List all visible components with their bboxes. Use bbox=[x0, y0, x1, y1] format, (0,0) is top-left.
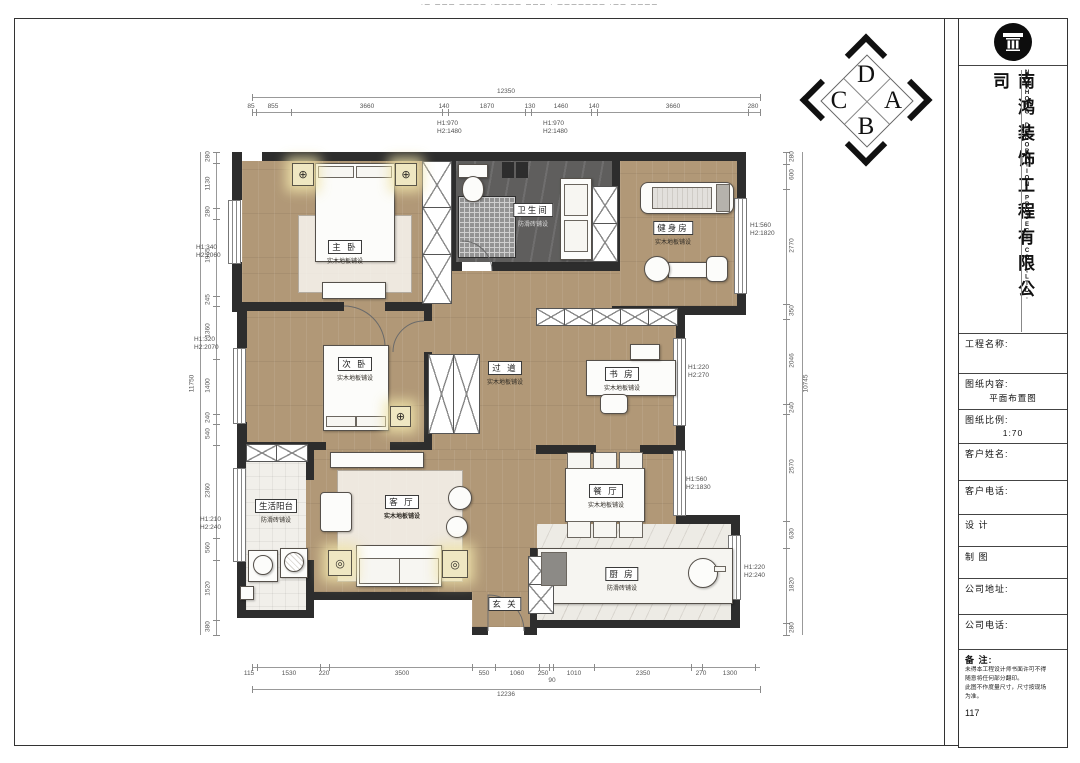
laundry-basin bbox=[284, 552, 304, 572]
field-drawing-scale: 图纸比例: 1:70 bbox=[959, 409, 1067, 443]
desk-chair bbox=[600, 394, 628, 414]
dining-chair bbox=[593, 521, 617, 538]
field-value: 平面布置图 bbox=[959, 392, 1067, 404]
room-label-study: 书 房 实木地板铺设 bbox=[604, 364, 640, 392]
bookshelf bbox=[592, 308, 622, 326]
balcony-cabinet bbox=[246, 444, 278, 462]
bookshelf bbox=[536, 308, 566, 326]
remarks-line: 为准。 bbox=[959, 693, 1067, 702]
dining-chair bbox=[567, 452, 591, 469]
dimension-total: 11750 bbox=[189, 364, 196, 404]
dimension-value: 630 bbox=[789, 522, 796, 546]
entry-cabinet bbox=[528, 584, 554, 614]
balcony-cabinet bbox=[276, 444, 308, 462]
pillow bbox=[356, 416, 386, 427]
field-draftsman: 制 图 bbox=[959, 546, 1067, 578]
dimension-value: 245 bbox=[205, 288, 212, 312]
wardrobe bbox=[422, 207, 452, 256]
dimension-value: 250 bbox=[532, 670, 554, 677]
company-name-section: 南鸿装饰工程有限公司 NANHONG DECORATION PROJECT CO… bbox=[959, 65, 1067, 333]
pillow bbox=[326, 416, 356, 427]
remarks-line: 此图不作度量尺寸，尺寸按现场 bbox=[959, 684, 1067, 693]
floor-lamp-icon: ◎ bbox=[442, 550, 468, 578]
floor-finish-label: 防滑砖铺设 bbox=[255, 515, 297, 524]
height-annotation: H1:970 H2:1480 bbox=[437, 120, 462, 136]
height-annotation: H1:970 H2:1480 bbox=[543, 120, 568, 136]
dimension-value: 2350 bbox=[631, 670, 655, 677]
dimension-value: 140 bbox=[433, 103, 455, 110]
field-value: 1:70 bbox=[959, 428, 1067, 438]
room-name: 次 卧 bbox=[338, 357, 371, 371]
cooktop bbox=[541, 552, 567, 586]
wardrobe bbox=[453, 354, 480, 434]
sink-basin bbox=[564, 184, 588, 216]
dimension-value: 540 bbox=[205, 422, 212, 446]
toilet-bowl bbox=[462, 176, 484, 202]
dimension-ticks bbox=[252, 686, 253, 693]
field-company-phone: 公司电话: bbox=[959, 614, 1067, 649]
dimension-ticks bbox=[213, 152, 220, 153]
dimension-total: 12236 bbox=[476, 691, 536, 698]
dining-chair bbox=[593, 452, 617, 469]
dimension-value: 2570 bbox=[789, 455, 796, 479]
floor-finish-label: 实木地板铺设 bbox=[588, 500, 624, 509]
pillow bbox=[356, 166, 392, 178]
dimension-value: 2046 bbox=[789, 349, 796, 373]
dimension-value: 130 bbox=[519, 103, 541, 110]
dimension-value: 1530 bbox=[277, 670, 301, 677]
wardrobe bbox=[428, 354, 455, 434]
washer-drum bbox=[253, 555, 273, 575]
dimension-value: 550 bbox=[473, 670, 495, 677]
floor-finish-label: 实木地板铺设 bbox=[384, 511, 420, 520]
dimension-value: 1300 bbox=[718, 670, 742, 677]
dimension-value: 600 bbox=[789, 163, 796, 187]
round-side-table bbox=[446, 516, 468, 538]
room-name: 客 厅 bbox=[385, 495, 418, 509]
dimension-value: 3660 bbox=[661, 103, 685, 110]
dimension-value: 280 bbox=[205, 200, 212, 224]
dimension-value: 140 bbox=[583, 103, 605, 110]
ceiling-light-icon: ⊕ bbox=[390, 406, 411, 427]
treadmill-belt bbox=[652, 187, 712, 209]
field-label: 图纸内容: bbox=[959, 374, 1067, 390]
company-logo bbox=[959, 19, 1067, 65]
side-table bbox=[630, 344, 660, 360]
dimension-value: 220 bbox=[313, 670, 335, 677]
room-label-balcony: 生活阳台 防滑砖铺设 bbox=[255, 496, 297, 524]
company-name-en: NANHONG DECORATION PROJECT CO.,LTD. bbox=[1021, 70, 1030, 332]
dimension-value: 270 bbox=[690, 670, 712, 677]
dimension-total: 12350 bbox=[476, 88, 536, 95]
room-name: 过 道 bbox=[488, 361, 521, 375]
room-name: 生活阳台 bbox=[255, 499, 297, 513]
bathroom-cabinet bbox=[592, 186, 618, 225]
sink-basin bbox=[564, 220, 588, 252]
dimension-value: 240 bbox=[789, 396, 796, 420]
dining-chair bbox=[619, 452, 643, 469]
dimension-ticks bbox=[252, 94, 253, 101]
field-client-name: 客户姓名: bbox=[959, 443, 1067, 480]
height-annotation: H1:220 H2:240 bbox=[744, 564, 765, 580]
floor-drain bbox=[240, 586, 254, 600]
room-label-second: 次 卧 实木地板铺设 bbox=[337, 354, 373, 382]
dining-chair bbox=[619, 521, 643, 538]
floor-finish-label: 实木地板铺设 bbox=[337, 373, 373, 382]
dimension-value: 280 bbox=[789, 616, 796, 640]
floor-finish-label: 实木地板铺设 bbox=[487, 377, 523, 386]
floor-finish-label: 实木地板铺设 bbox=[653, 237, 693, 246]
dimension-total: 10745 bbox=[803, 364, 810, 404]
room-label-dining: 餐 厅 实木地板铺设 bbox=[588, 481, 624, 509]
room-name: 主 卧 bbox=[328, 240, 361, 254]
remarks-line: 随意将任何部分翻印。 bbox=[959, 675, 1067, 684]
remarks-section: 备 注: 未得本工程设计师书面许可不得 随意将任何部分翻印。 此图不作度量尺寸，… bbox=[959, 649, 1067, 746]
bathroom-cabinet bbox=[592, 223, 618, 262]
remarks-label: 备 注: bbox=[959, 650, 1067, 666]
floor-plan: ⊕ ⊕ ⊕ ◎ ◎ bbox=[0, 0, 944, 745]
floor-finish-label: 实木地板铺设 bbox=[327, 256, 363, 265]
sofa-cushion bbox=[359, 558, 400, 584]
room-name: 玄 关 bbox=[488, 597, 521, 611]
dimension-value: 560 bbox=[205, 536, 212, 560]
dimension-ticks bbox=[252, 109, 253, 116]
floor-finish-label: 防滑砖铺设 bbox=[605, 583, 638, 592]
remarks-line: 未得本工程设计师书面许可不得 bbox=[959, 666, 1067, 675]
room-label-living: 客 厅 实木地板铺设 bbox=[384, 492, 420, 520]
room-label-master: 主 卧 实木地板铺设 bbox=[327, 237, 363, 265]
title-block: 南鸿装饰工程有限公司 NANHONG DECORATION PROJECT CO… bbox=[958, 18, 1068, 748]
armchair bbox=[320, 492, 352, 532]
field-label: 公司电话: bbox=[959, 615, 1067, 631]
round-side-table bbox=[448, 486, 472, 510]
cutoff-header-text: ·— ——— ———— ·———— ——— · ——————— ·—— ———— bbox=[340, 2, 740, 8]
dimension-value: 1060 bbox=[505, 670, 529, 677]
room-name: 书 房 bbox=[605, 367, 638, 381]
pillow bbox=[318, 166, 354, 178]
field-label: 客户电话: bbox=[959, 481, 1067, 497]
height-annotation: H1:320 H2:2070 bbox=[194, 336, 219, 352]
floor-finish-label: 防滑砖铺设 bbox=[513, 219, 553, 228]
dining-chair bbox=[567, 521, 591, 538]
faucet bbox=[714, 566, 726, 572]
dimension-value: 85 bbox=[240, 103, 262, 110]
ceiling-light-icon: ⊕ bbox=[395, 163, 417, 186]
floor-lamp-icon: ◎ bbox=[328, 550, 352, 576]
ceiling-light-icon: ⊕ bbox=[292, 163, 314, 186]
field-label: 工程名称: bbox=[959, 334, 1067, 350]
column-glyph bbox=[1001, 30, 1025, 54]
bike-flywheel bbox=[644, 256, 670, 282]
height-annotation: H1:220 H2:270 bbox=[688, 364, 709, 380]
column-logo-icon bbox=[994, 23, 1032, 61]
field-client-phone: 客户电话: bbox=[959, 480, 1067, 514]
dimension-value: 1520 bbox=[205, 577, 212, 601]
dimension-value: 3500 bbox=[390, 670, 414, 677]
floor-plan-sheet: { "sheet": { "top_note": "·— ——— ———— ·—… bbox=[0, 0, 1080, 763]
dimension-value: 280 bbox=[742, 103, 764, 110]
bike-seat bbox=[706, 256, 728, 282]
dimension-value: 1130 bbox=[205, 172, 212, 196]
room-label-entry: 玄 关 bbox=[488, 594, 521, 612]
tv-cabinet bbox=[330, 452, 424, 468]
wardrobe bbox=[422, 254, 452, 304]
bookshelf bbox=[564, 308, 594, 326]
dimension-value: 855 bbox=[262, 103, 284, 110]
dimension-value: 280 bbox=[205, 145, 212, 169]
room-name: 卫生间 bbox=[513, 203, 553, 217]
wardrobe bbox=[422, 161, 452, 209]
treadmill-console bbox=[716, 184, 730, 212]
field-label: 制 图 bbox=[959, 547, 1067, 563]
field-designer: 设 计 bbox=[959, 514, 1067, 546]
dimension-value: 90 bbox=[543, 677, 561, 684]
floor-finish-label: 实木地板铺设 bbox=[604, 383, 640, 392]
page-number: 117 bbox=[959, 705, 1067, 718]
dimension-value: 350 bbox=[789, 299, 796, 323]
bed-bench bbox=[322, 282, 386, 299]
field-label: 图纸比例: bbox=[959, 410, 1067, 426]
dimension-value: 2770 bbox=[789, 234, 796, 258]
dimension-value: 1820 bbox=[789, 573, 796, 597]
height-annotation: H1:560 H2:1820 bbox=[750, 222, 775, 238]
field-project-name: 工程名称: bbox=[959, 333, 1067, 373]
dimension-value: 1400 bbox=[205, 374, 212, 398]
height-annotation: H1:340 H2:2060 bbox=[196, 244, 221, 260]
titleblock-divider-line bbox=[944, 18, 945, 746]
room-label-kitchen: 厨 房 防滑砖铺设 bbox=[605, 564, 638, 592]
room-name: 健身房 bbox=[653, 221, 693, 235]
bookshelf bbox=[620, 308, 650, 326]
field-label: 客户姓名: bbox=[959, 444, 1067, 460]
dimension-value: 3660 bbox=[355, 103, 379, 110]
height-annotation: H1:210 H2:240 bbox=[200, 516, 221, 532]
dimension-value: 115 bbox=[238, 670, 260, 677]
room-name: 厨 房 bbox=[605, 567, 638, 581]
field-label: 设 计 bbox=[959, 515, 1067, 531]
room-name: 餐 厅 bbox=[589, 484, 622, 498]
sheet-border-bottom bbox=[14, 745, 1066, 746]
field-drawing-content: 图纸内容: 平面布置图 bbox=[959, 373, 1067, 409]
dimension-value: 1870 bbox=[475, 103, 499, 110]
kitchen-sink bbox=[688, 558, 718, 588]
room-label-bathroom: 卫生间 防滑砖铺设 bbox=[513, 200, 553, 228]
dimension-value: 1010 bbox=[562, 670, 586, 677]
dimension-value: 380 bbox=[205, 615, 212, 639]
room-label-gym: 健身房 实木地板铺设 bbox=[653, 218, 693, 246]
height-annotation: H1:560 H2:1830 bbox=[686, 476, 711, 492]
bookshelf bbox=[648, 308, 678, 326]
dimension-value: 1460 bbox=[549, 103, 573, 110]
room-label-corridor: 过 道 实木地板铺设 bbox=[487, 358, 523, 386]
field-label: 公司地址: bbox=[959, 579, 1067, 595]
dimension-value: 2360 bbox=[205, 479, 212, 503]
exercise-bike bbox=[668, 262, 710, 278]
field-company-address: 公司地址: bbox=[959, 578, 1067, 614]
sofa-cushion bbox=[399, 558, 439, 584]
